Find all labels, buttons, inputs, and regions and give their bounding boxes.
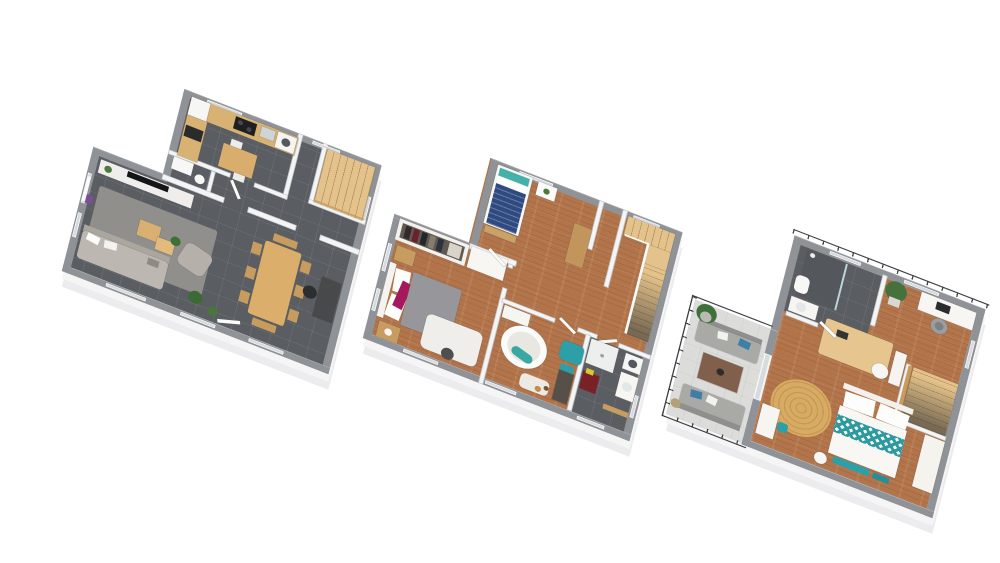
floor-plan-rendering bbox=[0, 0, 1000, 563]
ground-floor-plan bbox=[62, 62, 382, 374]
first-floor-plan bbox=[363, 129, 683, 441]
top-floor-plan bbox=[666, 206, 986, 518]
